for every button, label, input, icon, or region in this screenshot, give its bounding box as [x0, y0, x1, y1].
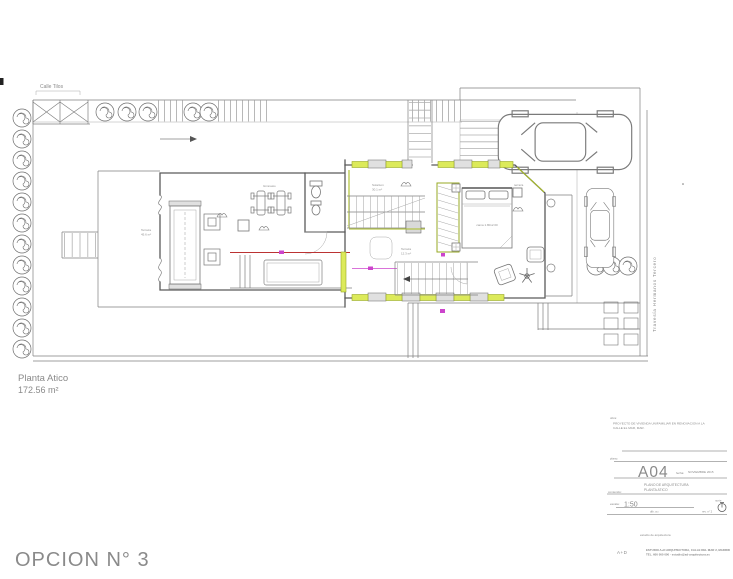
stair-upper [347, 196, 425, 233]
bed [462, 188, 522, 248]
nightstand [513, 188, 522, 197]
floor-caption-area: 172.56 m² [18, 385, 59, 395]
wardrobe [437, 183, 460, 252]
stair-lower [395, 262, 478, 295]
room-area-solarium: 30.1 m² [372, 188, 382, 192]
armchair [527, 247, 544, 262]
fecha-label: fecha: [676, 471, 684, 475]
studio-signature: estudio de arquitectura A+D ESTUDIO A+D … [617, 533, 730, 557]
gym-machine [271, 191, 291, 215]
west-deck [62, 171, 345, 307]
street-label-top: Calle Tilos [40, 84, 64, 90]
escala-value: 1:50 [624, 502, 638, 509]
contenido-line1: PLANO DE ARQUITECTURA [644, 483, 689, 487]
window-strips-south [352, 293, 504, 301]
address-line1: ESTUDIO A+D ARQUITECTURA, CALLE DEL MAR … [646, 548, 730, 552]
window-strips-north [352, 160, 513, 168]
trees-top-row [96, 103, 218, 121]
bathroom-fixtures [310, 181, 322, 215]
trees-left-column [13, 109, 31, 358]
drawing-sheet: Calle Tilos Travesía Hermanos Tercero Te… [0, 0, 733, 579]
plant-icon [401, 182, 411, 186]
parking-squares [604, 302, 638, 345]
address-line2: TEL. 600 000 000 · estudio@ad-arquitectu… [646, 553, 710, 557]
room-area-terraza: 45.6 m² [141, 233, 151, 237]
contenido-label: contenido: [608, 490, 622, 494]
floor-caption-title: Planta Atico [18, 373, 68, 384]
title-block: obra: PROYECTO DE VIVIENDA UNIFAMILIAR E… [607, 416, 727, 515]
column [547, 264, 555, 272]
ceiling-fan-icon [519, 268, 534, 283]
sheet-number: A04 [638, 464, 669, 481]
room-label-gimnasio: Gimnasio [263, 184, 276, 188]
option-title: OPCION N° 3 [15, 549, 150, 571]
obra-line1: PROYECTO DE VIVIENDA UNIFAMILIAR EN RENO… [613, 422, 706, 426]
room-label-terraza-sur: Terraza [401, 247, 411, 251]
plot-dot [682, 183, 684, 185]
north-compass-icon [718, 503, 726, 512]
plant-icon [513, 207, 523, 211]
dib-label: dib. a.r. [650, 510, 659, 514]
rev-label: rev. n° 2 [702, 510, 713, 514]
obra-label: obra: [610, 416, 617, 420]
bar-counter [169, 201, 201, 289]
room-label-terraza: Terraza [141, 228, 151, 232]
armchair-2 [493, 263, 516, 285]
studio-logo: A+D [617, 550, 628, 555]
street-label-right: Travesía Hermanos Tercero [652, 256, 657, 332]
registration-mark [0, 78, 4, 85]
studio-line: estudio de arquitectura [640, 533, 671, 537]
escala-label: escala: [610, 502, 620, 506]
plant-icon [259, 226, 269, 230]
car-parked-top [498, 111, 631, 173]
direction-arrow [190, 136, 197, 142]
column [547, 199, 555, 207]
entry-gate [33, 91, 90, 124]
contenido-line2: PLANTA ATICO [644, 488, 668, 492]
stair-landing [406, 221, 421, 233]
plano-label: plano: [610, 457, 618, 461]
stool [204, 249, 220, 265]
room-area-terraza-sur: 12.3 m² [401, 252, 411, 256]
side-table [238, 220, 249, 231]
room-label-terraza-este: terraza [514, 183, 524, 187]
bed-label: cama 1.80x2.00 [476, 223, 498, 227]
room-label-solarium: Solarium [372, 183, 384, 187]
fecha-value: NOVIEMBRE 2015 [688, 470, 714, 474]
car-parked-side [584, 189, 615, 268]
plan-canvas: Calle Tilos Travesía Hermanos Tercero Te… [0, 0, 733, 579]
gym-machine [251, 191, 271, 215]
pool [230, 252, 352, 292]
obra-line2: CALLE EL MAR, MAR. [613, 426, 645, 430]
rug [370, 237, 392, 259]
norte-label: norte [715, 499, 722, 503]
